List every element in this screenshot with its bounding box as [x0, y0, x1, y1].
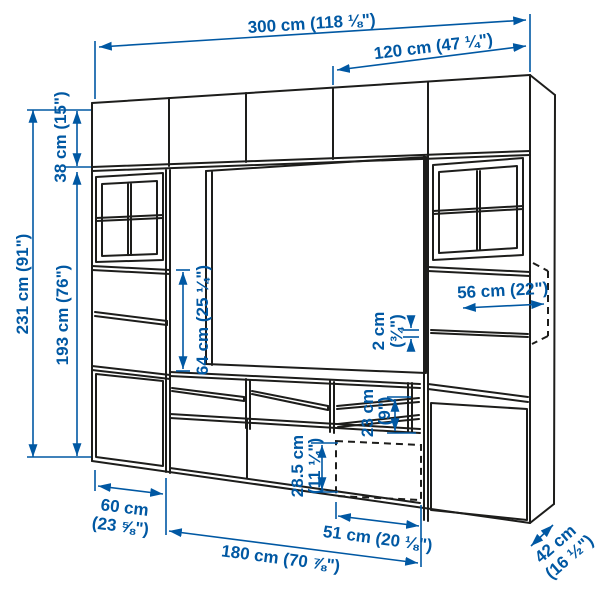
dim-door-width: 51 cm (20 ⅛") — [322, 502, 434, 555]
glass-door-left — [96, 173, 163, 262]
dim-total-height: 231 cm (91") 38 cm (15") 193 cm (76") — [13, 91, 91, 457]
dim-shelf-depth: 56 cm (22") — [457, 279, 549, 308]
left-column — [92, 170, 170, 473]
dim-top-row-height-label: 38 cm (15") — [51, 91, 70, 182]
left-bottom-door — [96, 374, 163, 466]
dim-drawer-height-inches: (11 ¼") — [305, 438, 324, 494]
dim-shelf-thickness: 2 cm (¾") — [369, 312, 419, 351]
dim-shelf-section-height-label: 64 cm (25 ¼") — [193, 265, 212, 375]
dim-total-height-label: 231 cm (91") — [13, 234, 32, 335]
dim-lower-height-label: 193 cm (76") — [53, 265, 72, 366]
glass-door-right — [433, 158, 523, 260]
dim-shelf-thickness-label: 2 cm — [369, 312, 388, 351]
dim-bench-width-label: 180 cm (70 ⅞") — [220, 541, 341, 575]
dim-compartment-height-inches: (9") — [375, 397, 394, 426]
dimension-diagram-svg: 300 cm (118 ⅛") 120 cm (47 ¼") 231 cm (9… — [0, 0, 600, 600]
top-cabinets — [92, 82, 530, 171]
dim-total-width-label: 300 cm (118 ⅛") — [247, 10, 376, 37]
dim-shelf-section-height: 64 cm (25 ¼") — [176, 265, 212, 375]
side-panel — [530, 75, 555, 523]
dim-shelf-thickness-inches: (¾") — [387, 314, 406, 348]
dim-shelf-depth-label: 56 cm (22") — [457, 279, 549, 303]
dim-door-width-label: 51 cm (20 ⅛") — [322, 522, 434, 555]
right-bottom-door — [431, 403, 527, 520]
left-open-shelves — [92, 266, 170, 379]
drawer-front-dashed — [336, 441, 421, 500]
dim-unit-depth: 42 cm (16 ½") — [529, 517, 597, 583]
dim-column-width: 60 cm (23 ⅝") — [91, 470, 166, 539]
dim-drawer-height: 28.5 cm (11 ¼") — [288, 435, 338, 497]
dimension-annotations: 300 cm (118 ⅛") 120 cm (47 ¼") 231 cm (9… — [13, 10, 597, 583]
product-dimension-diagram: 300 cm (118 ⅛") 120 cm (47 ¼") 231 cm (9… — [0, 0, 600, 600]
